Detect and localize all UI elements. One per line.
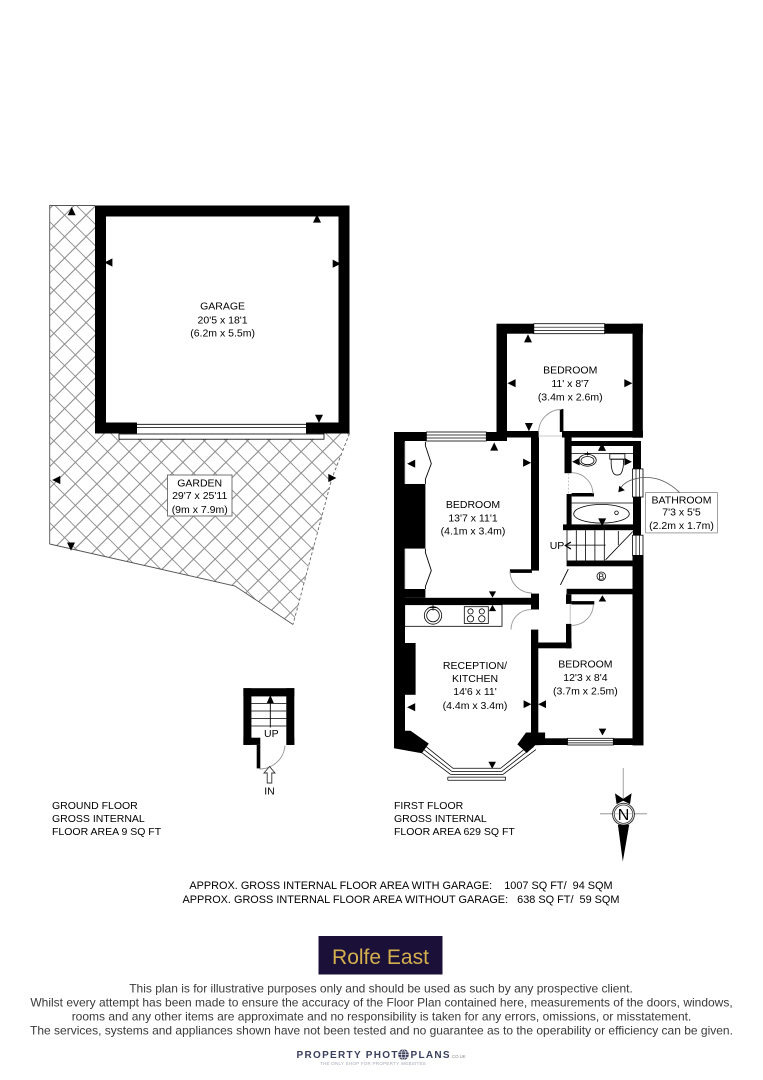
svg-text:FLOOR AREA 629 SQ FT: FLOOR AREA 629 SQ FT bbox=[394, 826, 515, 838]
svg-text:The services, systems and appl: The services, systems and appliances sho… bbox=[30, 1024, 733, 1038]
svg-text:B: B bbox=[598, 572, 604, 582]
svg-text:(6.2m x 5.5m): (6.2m x 5.5m) bbox=[190, 328, 255, 340]
svg-text:14'6 x 11': 14'6 x 11' bbox=[453, 686, 497, 698]
svg-text:PROPERTY PHOT: PROPERTY PHOT bbox=[297, 1050, 399, 1061]
svg-text:IN: IN bbox=[264, 786, 275, 798]
svg-text:GARDEN: GARDEN bbox=[177, 477, 222, 489]
svg-text:APPROX. GROSS INTERNAL FLOOR A: APPROX. GROSS INTERNAL FLOOR AREA WITH G… bbox=[189, 880, 612, 892]
svg-text:(4.4m x 3.4m): (4.4m x 3.4m) bbox=[443, 700, 508, 712]
svg-text:11' x 8'7: 11' x 8'7 bbox=[551, 378, 589, 390]
svg-text:PLANS: PLANS bbox=[411, 1050, 451, 1061]
svg-text:FLOOR AREA 9 SQ FT: FLOOR AREA 9 SQ FT bbox=[52, 826, 162, 838]
svg-text:GROUND FLOOR: GROUND FLOOR bbox=[52, 800, 138, 812]
svg-text:UP: UP bbox=[550, 540, 565, 552]
svg-text:THE ONLY SHOP FOR PROPERTY WEB: THE ONLY SHOP FOR PROPERTY WEBSITES bbox=[320, 1061, 426, 1066]
svg-text:KITCHEN: KITCHEN bbox=[452, 673, 498, 685]
svg-text:Whilst every attempt has been: Whilst every attempt has been made to en… bbox=[30, 996, 732, 1010]
svg-text:GARAGE: GARAGE bbox=[200, 301, 245, 313]
svg-text:BEDROOM: BEDROOM bbox=[543, 364, 597, 376]
svg-text:UP: UP bbox=[264, 728, 279, 740]
svg-text:rooms and any other items are: rooms and any other items are approximat… bbox=[72, 1010, 692, 1024]
svg-text:(2.2m x 1.7m): (2.2m x 1.7m) bbox=[649, 520, 714, 532]
svg-text:Rolfe East: Rolfe East bbox=[332, 946, 429, 969]
svg-text:.CO.UK: .CO.UK bbox=[451, 1054, 466, 1059]
svg-text:(9m x 7.9m): (9m x 7.9m) bbox=[172, 504, 228, 516]
svg-text:FIRST FLOOR: FIRST FLOOR bbox=[394, 800, 464, 812]
svg-text:GROSS INTERNAL: GROSS INTERNAL bbox=[52, 813, 145, 825]
svg-text:(3.7m x 2.5m): (3.7m x 2.5m) bbox=[553, 685, 618, 697]
svg-text:This plan is for illustrative: This plan is for illustrative purposes o… bbox=[129, 982, 633, 996]
svg-text:RECEPTION/: RECEPTION/ bbox=[443, 660, 507, 672]
svg-text:BEDROOM: BEDROOM bbox=[558, 659, 612, 671]
svg-text:7'3 x 5'5: 7'3 x 5'5 bbox=[662, 506, 701, 518]
svg-text:12'3 x 8'4: 12'3 x 8'4 bbox=[563, 672, 607, 684]
svg-text:BEDROOM: BEDROOM bbox=[446, 499, 500, 511]
svg-text:APPROX. GROSS INTERNAL FLOOR A: APPROX. GROSS INTERNAL FLOOR AREA WITHOU… bbox=[183, 894, 620, 906]
svg-text:20'5 x 18'1: 20'5 x 18'1 bbox=[198, 315, 248, 327]
svg-text:GROSS INTERNAL: GROSS INTERNAL bbox=[394, 813, 487, 825]
svg-text:BATHROOM: BATHROOM bbox=[652, 495, 712, 507]
svg-text:13'7 x 11'1: 13'7 x 11'1 bbox=[448, 512, 498, 524]
svg-text:(4.1m x 3.4m): (4.1m x 3.4m) bbox=[441, 526, 506, 538]
svg-text:29'7 x 25'11: 29'7 x 25'11 bbox=[172, 490, 227, 502]
svg-text:(3.4m x 2.6m): (3.4m x 2.6m) bbox=[538, 391, 603, 403]
svg-text:N: N bbox=[618, 807, 630, 824]
